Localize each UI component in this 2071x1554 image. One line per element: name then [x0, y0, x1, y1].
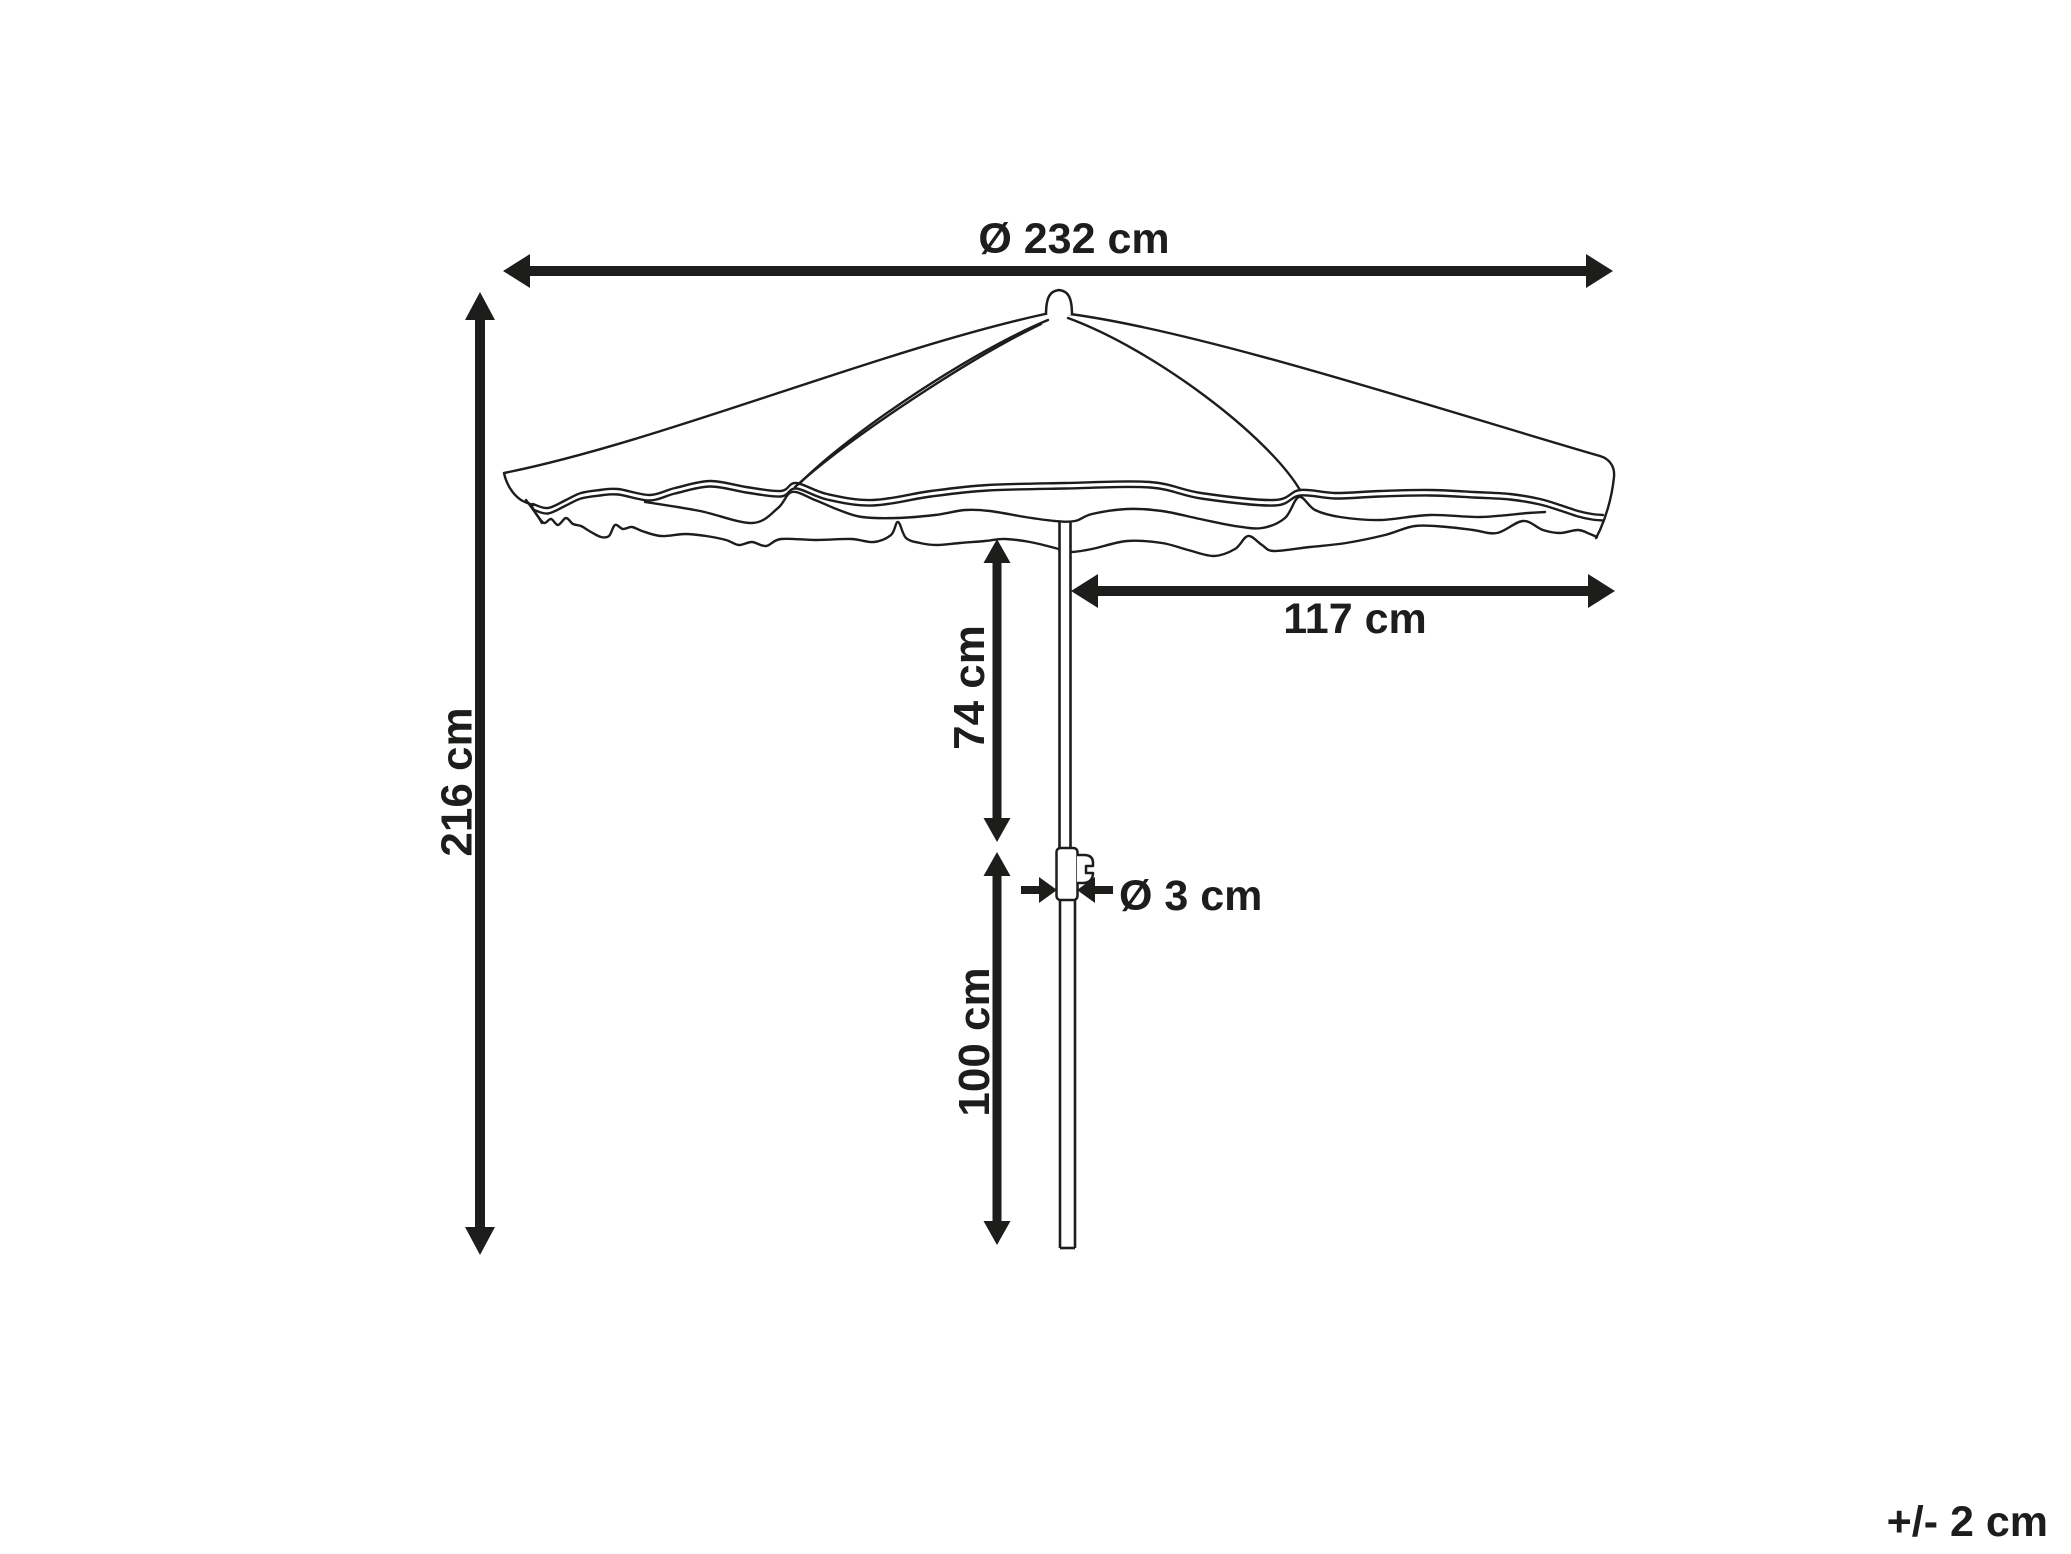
svg-text:100 cm: 100 cm [950, 967, 999, 1116]
svg-text:74 cm: 74 cm [945, 625, 994, 750]
svg-text:216 cm: 216 cm [433, 707, 482, 856]
svg-text:117 cm: 117 cm [1283, 595, 1426, 643]
svg-text:Ø 3 cm: Ø 3 cm [1119, 872, 1262, 920]
svg-text:+/- 2 cm: +/- 2 cm [1887, 1498, 2048, 1546]
svg-text:Ø 232 cm: Ø 232 cm [978, 215, 1169, 263]
